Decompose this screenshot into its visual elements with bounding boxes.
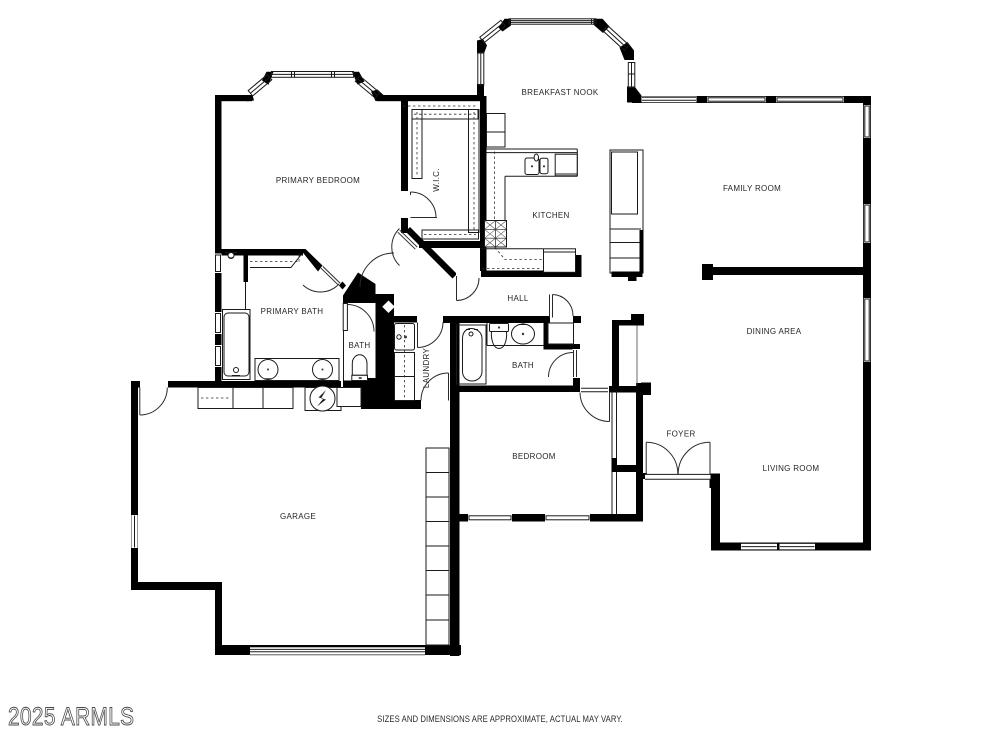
- svg-text:KITCHEN: KITCHEN: [532, 211, 569, 220]
- svg-text:BREAKFAST NOOK: BREAKFAST NOOK: [522, 88, 599, 97]
- svg-text:SIZES AND DIMENSIONS ARE APPRO: SIZES AND DIMENSIONS ARE APPROXIMATE, AC…: [377, 713, 623, 724]
- svg-text:PRIMARY BEDROOM: PRIMARY BEDROOM: [276, 176, 360, 185]
- svg-text:HALL: HALL: [507, 294, 528, 303]
- svg-text:BATH: BATH: [349, 341, 371, 350]
- svg-text:LAUNDRY: LAUNDRY: [422, 348, 431, 389]
- svg-text:FAMILY ROOM: FAMILY ROOM: [723, 184, 781, 193]
- svg-text:DINING AREA: DINING AREA: [747, 327, 802, 336]
- svg-text:W.I.C.: W.I.C.: [432, 168, 441, 192]
- svg-text:GARAGE: GARAGE: [280, 512, 316, 521]
- svg-text:BEDROOM: BEDROOM: [512, 452, 555, 461]
- svg-text:FOYER: FOYER: [666, 430, 695, 439]
- svg-text:LIVING ROOM: LIVING ROOM: [763, 464, 820, 473]
- svg-text:BATH: BATH: [512, 361, 534, 370]
- svg-text:2025 ARMLS: 2025 ARMLS: [8, 702, 134, 730]
- svg-text:PRIMARY BATH: PRIMARY BATH: [261, 307, 324, 316]
